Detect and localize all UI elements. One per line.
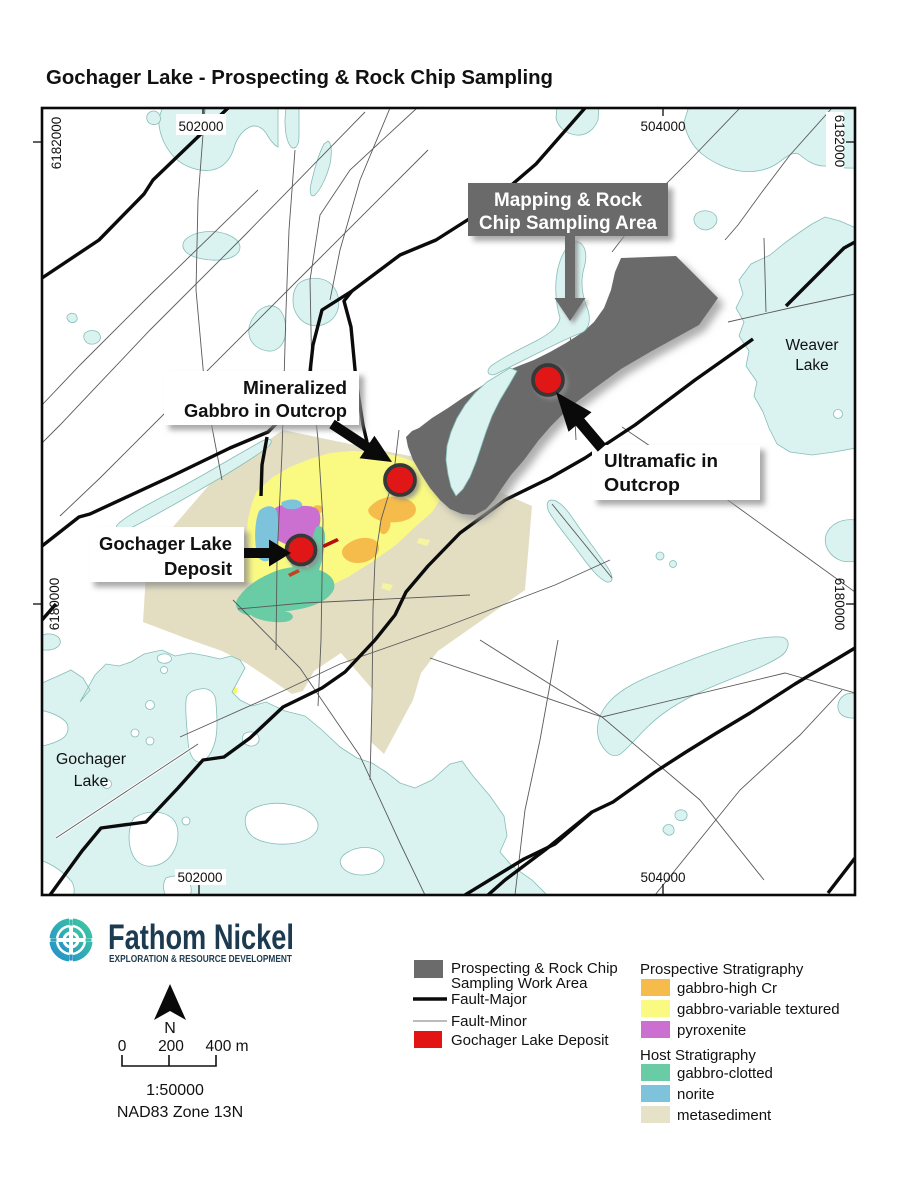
svg-text:504000: 504000 <box>640 870 685 885</box>
svg-text:1:50000: 1:50000 <box>146 1082 204 1099</box>
svg-text:Sampling Work Area: Sampling Work Area <box>451 975 588 992</box>
svg-text:Host Stratigraphy: Host Stratigraphy <box>640 1047 756 1064</box>
svg-text:norite: norite <box>677 1086 715 1103</box>
svg-text:Fault-Minor: Fault-Minor <box>451 1013 527 1030</box>
svg-text:metasediment: metasediment <box>677 1107 772 1124</box>
svg-text:Gochager: Gochager <box>56 751 127 768</box>
svg-text:gabbro-high Cr: gabbro-high Cr <box>677 980 777 997</box>
svg-text:Ultramafic in: Ultramafic in <box>604 450 718 471</box>
svg-text:Gochager Lake Deposit: Gochager Lake Deposit <box>451 1032 609 1049</box>
svg-text:Fault-Major: Fault-Major <box>451 991 527 1008</box>
svg-text:pyroxenite: pyroxenite <box>677 1022 746 1039</box>
svg-text:Gabbro in Outcrop: Gabbro in Outcrop <box>184 400 347 421</box>
svg-text:502000: 502000 <box>177 870 222 885</box>
svg-text:Chip Sampling Area: Chip Sampling Area <box>479 213 657 234</box>
svg-text:gabbro-clotted: gabbro-clotted <box>677 1065 773 1082</box>
svg-text:Outcrop: Outcrop <box>604 474 680 495</box>
svg-text:Lake: Lake <box>74 773 109 790</box>
svg-text:Weaver: Weaver <box>785 337 838 354</box>
svg-text:0: 0 <box>118 1038 127 1055</box>
svg-text:Gochager Lake: Gochager Lake <box>99 533 232 554</box>
svg-text:6182000: 6182000 <box>49 117 64 170</box>
svg-text:400 m: 400 m <box>205 1038 248 1055</box>
svg-text:Prospective Stratigraphy: Prospective Stratigraphy <box>640 961 804 978</box>
svg-text:504000: 504000 <box>640 119 685 134</box>
svg-text:Lake: Lake <box>795 357 829 374</box>
svg-text:EXPLORATION & RESOURCE DEVELOP: EXPLORATION & RESOURCE DEVELOPMENT <box>109 954 292 965</box>
svg-text:Deposit: Deposit <box>164 558 232 579</box>
svg-text:Fathom Nickel: Fathom Nickel <box>108 918 294 957</box>
svg-text:Mapping & Rock: Mapping & Rock <box>494 190 642 211</box>
svg-text:gabbro-variable textured: gabbro-variable textured <box>677 1001 840 1018</box>
svg-text:Mineralized: Mineralized <box>243 377 347 398</box>
svg-text:6180000: 6180000 <box>832 578 847 631</box>
svg-text:6182000: 6182000 <box>832 115 847 168</box>
svg-text:NAD83 Zone 13N: NAD83 Zone 13N <box>117 1104 243 1121</box>
svg-text:200: 200 <box>158 1038 184 1055</box>
svg-text:Gochager Lake - Prospecting &: Gochager Lake - Prospecting & Rock Chip … <box>46 66 553 89</box>
svg-text:6180000: 6180000 <box>47 578 62 631</box>
svg-text:N: N <box>164 1020 176 1037</box>
svg-text:502000: 502000 <box>178 119 223 134</box>
